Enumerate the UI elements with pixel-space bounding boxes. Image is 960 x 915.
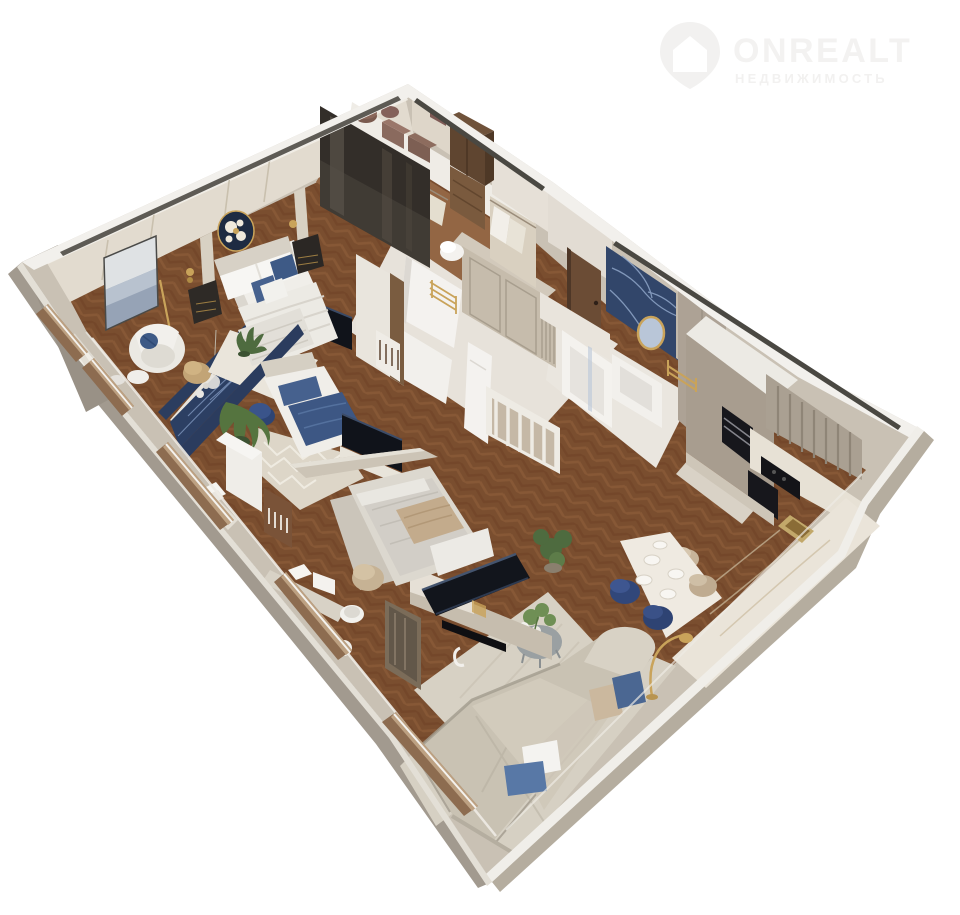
svg-text:ONREALT: ONREALT <box>733 32 912 70</box>
svg-text:НЕДВИЖИМОСТЬ: НЕДВИЖИМОСТЬ <box>735 71 888 86</box>
